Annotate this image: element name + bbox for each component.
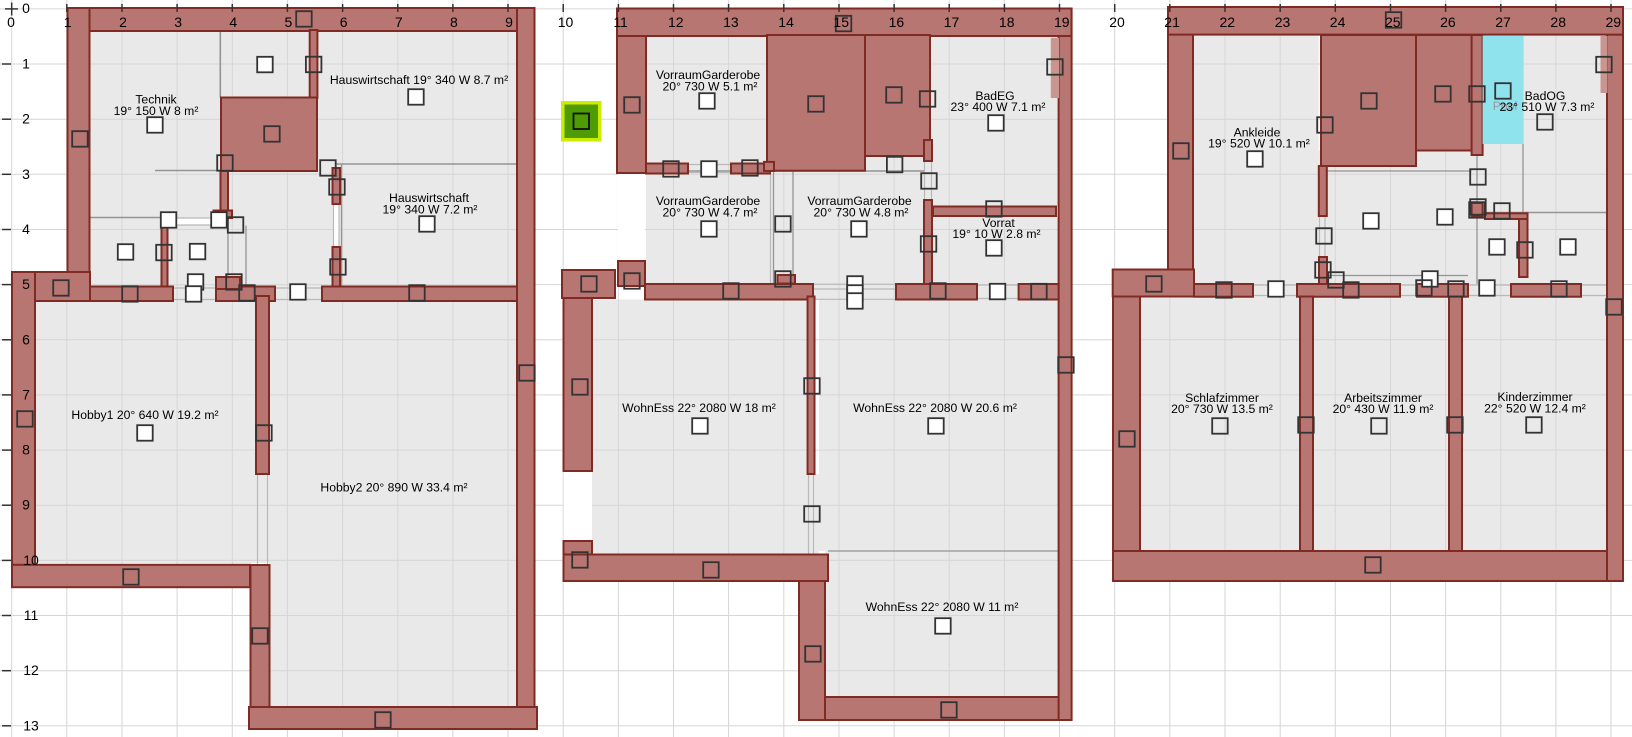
svg-text:Hobby1 20° 640 W 19.2 m²: Hobby1 20° 640 W 19.2 m²: [71, 408, 218, 422]
svg-text:3: 3: [174, 14, 182, 30]
svg-text:WohnEss 22° 2080 W 11 m²: WohnEss 22° 2080 W 11 m²: [866, 600, 1019, 614]
svg-text:23: 23: [1275, 14, 1291, 30]
svg-text:20° 430 W 11.9 m²: 20° 430 W 11.9 m²: [1333, 402, 1434, 416]
svg-text:20° 730 W 13.5 m²: 20° 730 W 13.5 m²: [1171, 402, 1273, 416]
svg-text:6: 6: [340, 14, 348, 30]
svg-text:5: 5: [22, 276, 30, 292]
svg-text:11: 11: [613, 14, 628, 30]
svg-text:WohnEss 22° 2080 W 18 m²: WohnEss 22° 2080 W 18 m²: [622, 401, 776, 415]
svg-text:11: 11: [24, 607, 39, 623]
svg-text:20° 730 W 5.1 m²: 20° 730 W 5.1 m²: [663, 80, 758, 94]
svg-text:Hauswirtschaft 19° 340 W 8.7 m: Hauswirtschaft 19° 340 W 8.7 m²: [330, 73, 508, 87]
svg-text:22: 22: [1220, 14, 1236, 30]
svg-text:27: 27: [1495, 14, 1511, 30]
svg-text:20° 730 W 4.7 m²: 20° 730 W 4.7 m²: [663, 206, 758, 220]
svg-text:23° 510 W 7.3 m²: 23° 510 W 7.3 m²: [1500, 100, 1595, 114]
svg-text:6: 6: [22, 331, 30, 347]
svg-text:13: 13: [23, 717, 39, 733]
svg-text:29: 29: [1606, 14, 1622, 30]
svg-text:9: 9: [22, 497, 30, 513]
svg-text:8: 8: [450, 14, 458, 30]
svg-text:13: 13: [723, 14, 739, 30]
svg-text:19° 520 W 10.1 m²: 19° 520 W 10.1 m²: [1208, 136, 1310, 150]
svg-text:2: 2: [119, 14, 127, 30]
svg-text:25: 25: [1385, 14, 1401, 30]
svg-text:7: 7: [22, 386, 30, 402]
svg-text:4: 4: [229, 14, 237, 30]
svg-text:14: 14: [778, 14, 794, 30]
svg-text:0: 0: [22, 0, 30, 16]
svg-text:2: 2: [22, 111, 30, 127]
svg-text:26: 26: [1440, 14, 1456, 30]
svg-text:21: 21: [1164, 14, 1180, 30]
svg-text:WohnEss 22° 2080 W 20.6 m²: WohnEss 22° 2080 W 20.6 m²: [853, 401, 1017, 415]
svg-text:19° 340 W 7.2 m²: 19° 340 W 7.2 m²: [383, 203, 478, 217]
svg-text:20° 730 W 4.8 m²: 20° 730 W 4.8 m²: [814, 206, 909, 220]
svg-text:0: 0: [7, 14, 15, 30]
svg-text:1: 1: [64, 14, 72, 30]
svg-text:20: 20: [1109, 14, 1125, 30]
svg-text:28: 28: [1550, 14, 1566, 30]
svg-text:23° 400 W 7.1 m²: 23° 400 W 7.1 m²: [951, 100, 1046, 114]
svg-text:16: 16: [889, 14, 905, 30]
svg-text:Hobby2 20° 890 W 33.4 m²: Hobby2 20° 890 W 33.4 m²: [320, 481, 467, 495]
svg-text:24: 24: [1330, 14, 1346, 30]
svg-text:19° 10 W 2.8 m²: 19° 10 W 2.8 m²: [952, 227, 1040, 241]
svg-text:3: 3: [22, 166, 30, 182]
svg-text:12: 12: [23, 662, 39, 678]
svg-text:9: 9: [505, 14, 513, 30]
svg-text:19° 150 W 8 m²: 19° 150 W 8 m²: [114, 104, 199, 118]
svg-text:19: 19: [1054, 14, 1070, 30]
svg-text:15: 15: [833, 14, 849, 30]
svg-text:5: 5: [285, 14, 293, 30]
svg-text:10: 10: [23, 552, 39, 568]
svg-text:17: 17: [944, 14, 960, 30]
svg-text:7: 7: [395, 14, 403, 30]
svg-text:8: 8: [22, 442, 30, 458]
svg-text:4: 4: [22, 221, 30, 237]
svg-text:10: 10: [558, 14, 574, 30]
svg-text:18: 18: [999, 14, 1015, 30]
svg-text:1: 1: [22, 56, 30, 72]
svg-text:12: 12: [668, 14, 684, 30]
svg-text:22° 520 W 12.4 m²: 22° 520 W 12.4 m²: [1484, 402, 1586, 416]
